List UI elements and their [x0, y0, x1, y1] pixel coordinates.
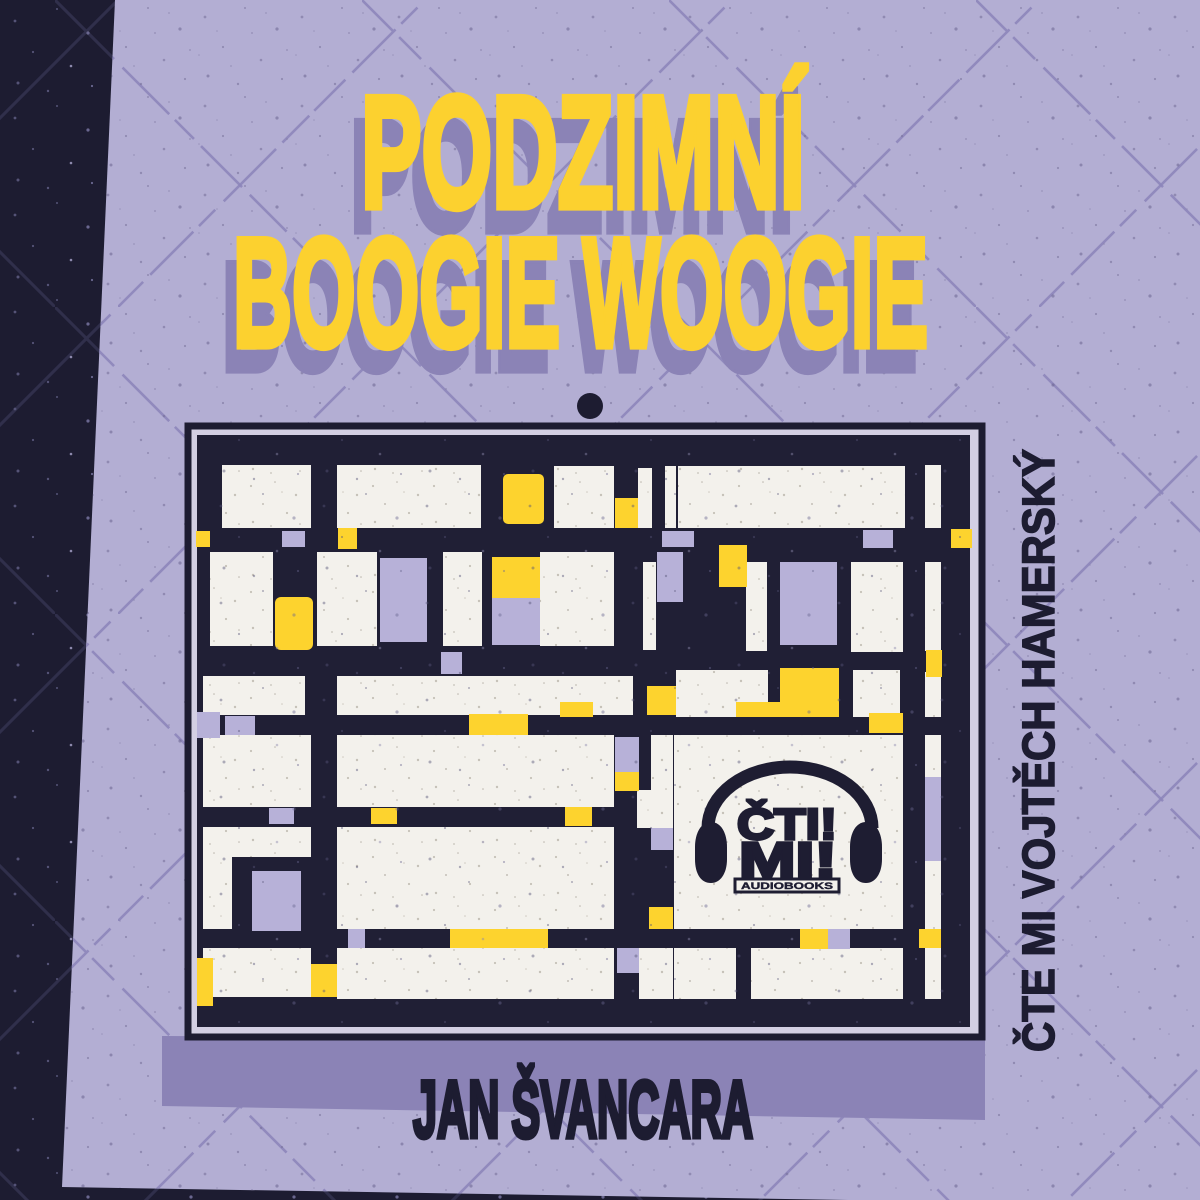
svg-text:BOOGIE WOOGIE: BOOGIE WOOGIE: [233, 207, 928, 379]
svg-text:ČTE MI VOJTĚCH HAMERSKÝ: ČTE MI VOJTĚCH HAMERSKÝ: [1013, 449, 1064, 1052]
svg-text:AUDIOBOOKS: AUDIOBOOKS: [741, 881, 833, 892]
svg-text:JAN ŠVANCARA: JAN ŠVANCARA: [413, 1063, 753, 1155]
